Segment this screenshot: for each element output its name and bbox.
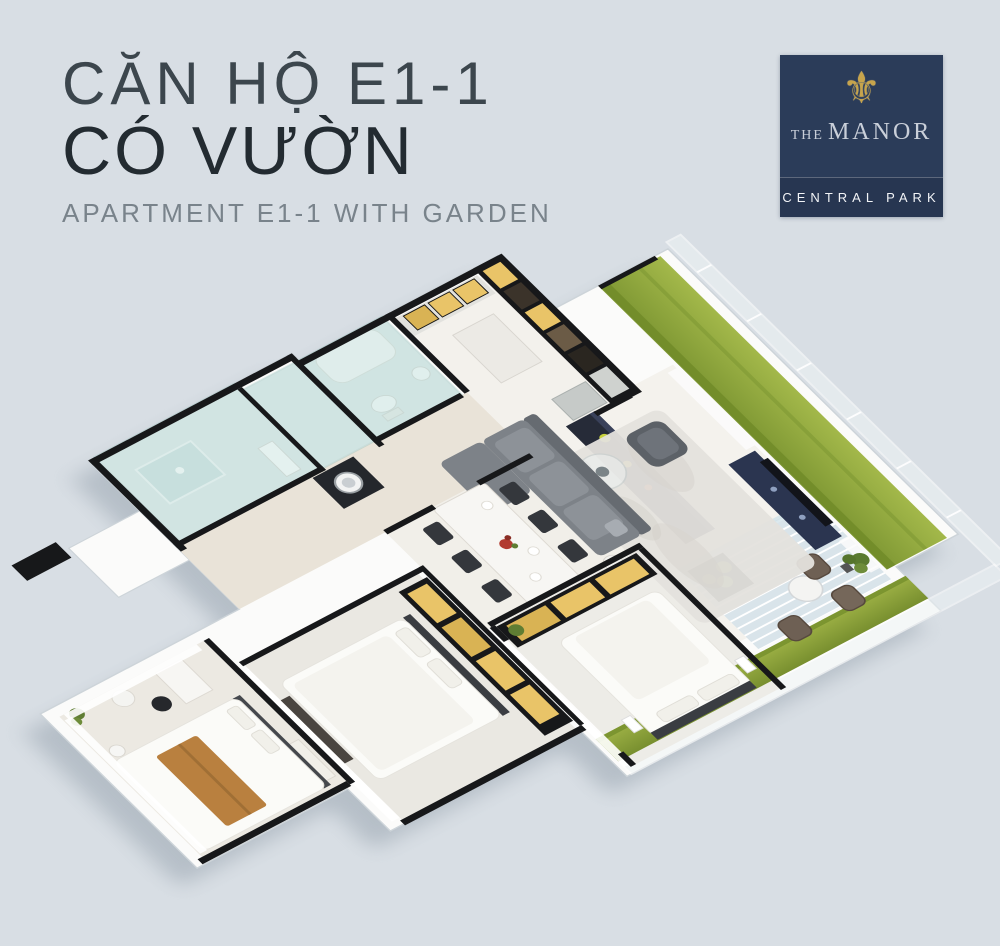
brochure-page: CĂN HỘ E1-1 CÓ VƯỜN APARTMENT E1-1 WITH … bbox=[0, 0, 1000, 946]
wall-stub bbox=[11, 542, 71, 581]
floor-plan-rendering bbox=[0, 0, 1000, 946]
